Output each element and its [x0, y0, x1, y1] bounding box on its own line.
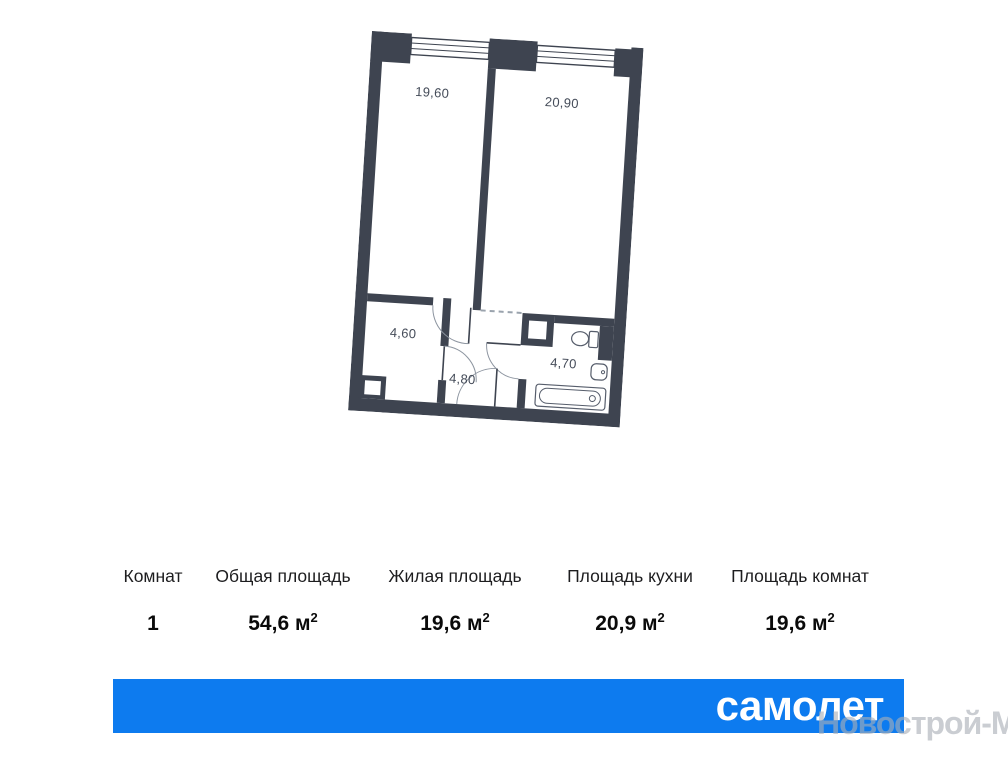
opening-dashed-line: [481, 310, 523, 313]
door-bathroom-leaf: [487, 343, 521, 345]
label-room-small: 4,60: [389, 325, 416, 342]
toilet-bowl-icon: [571, 331, 589, 346]
door-living-arc: [431, 305, 471, 343]
wall-bathroom-left-lower: [517, 379, 527, 408]
spec-header-kitchen-area: Площадь кухни: [556, 566, 704, 587]
spec-column-living-area: Жилая площадь 19,6 м2: [380, 566, 530, 636]
spec-column-rooms-area: Площадь комнат 19,6 м2: [722, 566, 878, 636]
watermark-text: Новострой-М: [817, 705, 1008, 742]
spec-value-rooms: 1: [108, 612, 198, 636]
wall-pier-right: [598, 326, 614, 361]
floorplan-listing-page: { "plan": { "wall_color": "#3e4450", "la…: [0, 0, 1008, 768]
window-right-icon: [536, 45, 615, 67]
label-hallway: 4,80: [449, 371, 476, 388]
spec-header-rooms-area: Площадь комнат: [722, 566, 878, 587]
spec-column-total-area: Общая площадь 54,6 м2: [208, 566, 358, 636]
wall-divider: [473, 68, 496, 310]
door-entry-leaf: [495, 369, 497, 407]
wall-bathroom-top: [554, 315, 614, 327]
door-room-small-leaf: [442, 346, 444, 380]
toilet-tank-icon: [589, 331, 599, 348]
spec-header-total-area: Общая площадь: [208, 566, 358, 587]
wall-left: [348, 31, 384, 411]
spec-column-kitchen-area: Площадь кухни 20,9 м2: [556, 566, 704, 636]
wall-right: [608, 47, 644, 427]
window-left-icon: [411, 38, 490, 60]
spec-header-rooms: Комнат: [108, 566, 198, 587]
label-room-living: 19,60: [415, 84, 450, 101]
label-room-kitchen: 20,90: [544, 94, 579, 111]
pillar-top-center: [488, 38, 538, 71]
pillar-top-right: [614, 48, 644, 78]
niche-inner: [364, 380, 381, 395]
pillar-top-left: [370, 31, 412, 63]
brand-banner: самолет: [113, 679, 904, 733]
floor-plan: 19,60 20,90 4,60 4,80 4,70: [348, 31, 643, 427]
wall-room-small-right-upper: [440, 298, 451, 346]
spec-column-rooms: Комнат 1: [108, 566, 198, 636]
door-bathroom-arc: [485, 343, 521, 379]
spec-value-living-area: 19,6 м2: [380, 612, 530, 636]
spec-header-living-area: Жилая площадь: [380, 566, 530, 587]
door-living-leaf: [469, 308, 471, 344]
wall-room-small-top: [367, 293, 433, 305]
label-bathroom: 4,70: [550, 355, 577, 372]
spec-value-total-area: 54,6 м2: [208, 612, 358, 636]
vent-shaft-inner: [528, 320, 547, 339]
wall-room-small-right-lower: [437, 380, 446, 403]
spec-value-rooms-area: 19,6 м2: [722, 612, 878, 636]
spec-value-kitchen-area: 20,9 м2: [556, 612, 704, 636]
